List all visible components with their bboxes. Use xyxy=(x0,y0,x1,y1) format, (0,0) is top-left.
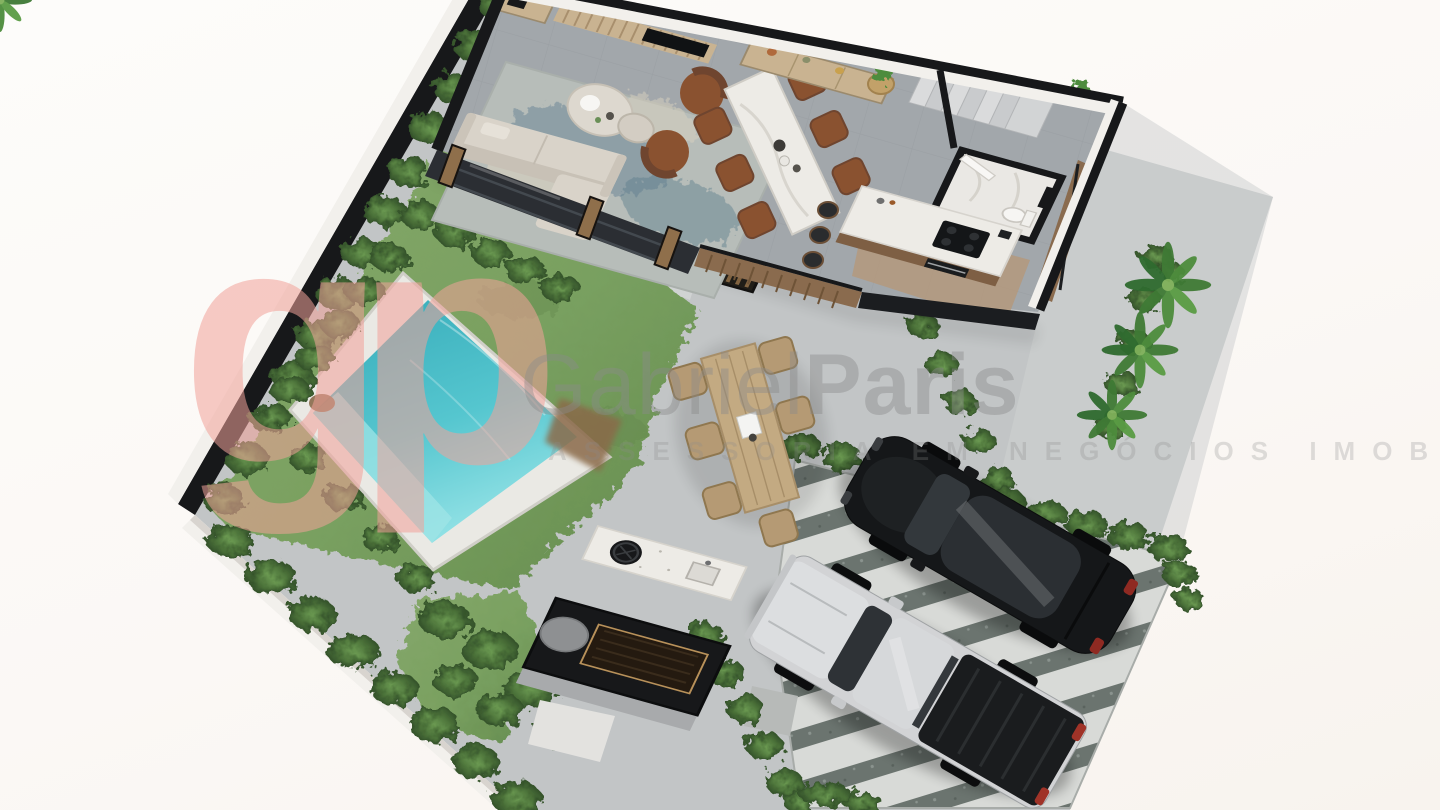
floor-plan-render: gp GabrielParis ASSESSORIA EM NEGÓCIOS I… xyxy=(0,0,1440,810)
scene-canvas xyxy=(0,0,1440,810)
palm-symbol xyxy=(0,0,32,32)
dirt-patch-small xyxy=(309,394,335,412)
